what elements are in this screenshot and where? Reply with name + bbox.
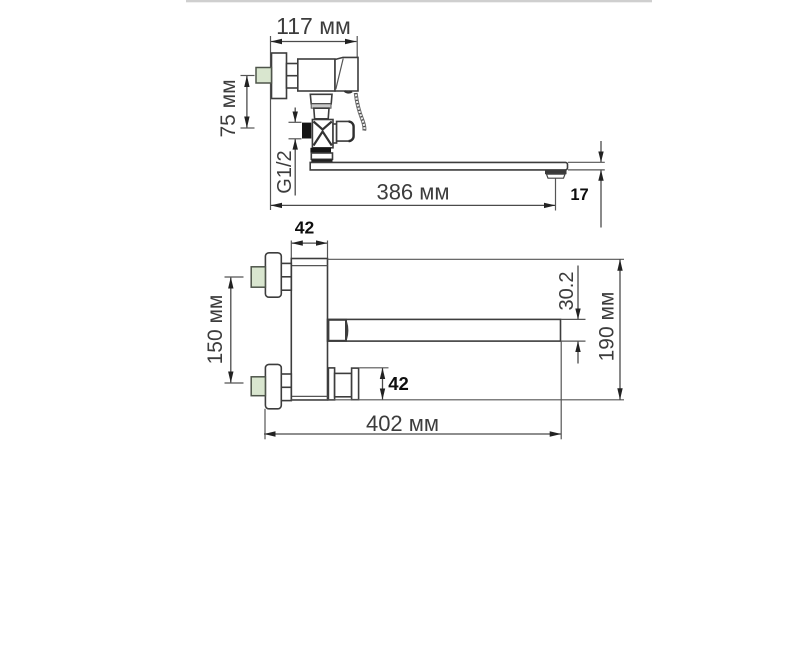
svg-text:G1/2: G1/2 [274, 150, 296, 193]
svg-text:30.2: 30.2 [556, 272, 578, 311]
svg-text:190 мм: 190 мм [596, 292, 619, 362]
svg-text:386 мм: 386 мм [376, 180, 449, 205]
svg-text:150 мм: 150 мм [204, 295, 227, 365]
svg-text:402 мм: 402 мм [366, 411, 439, 436]
svg-text:75 мм: 75 мм [217, 79, 240, 137]
svg-text:17: 17 [570, 186, 588, 204]
svg-text:117 мм: 117 мм [276, 13, 351, 39]
svg-text:42: 42 [388, 373, 409, 394]
svg-text:42: 42 [295, 218, 315, 238]
